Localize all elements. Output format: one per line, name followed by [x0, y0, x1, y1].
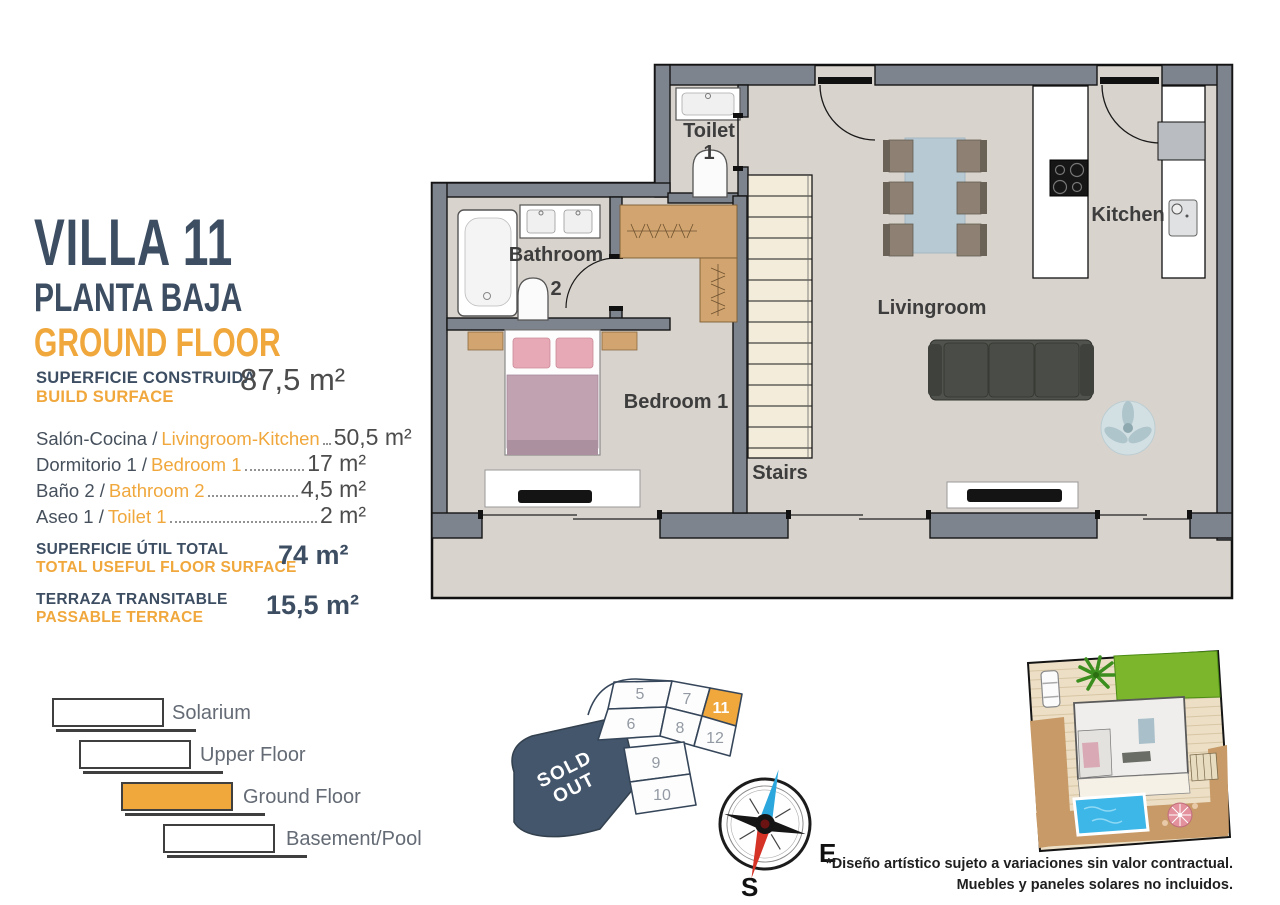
legend-line: [167, 855, 307, 858]
room-value: 2 m²: [320, 502, 366, 529]
unit-number-12: 12: [706, 730, 724, 747]
unit-number-5: 5: [636, 686, 645, 703]
compass-south-label: S: [741, 872, 758, 902]
build-surface-label-en: BUILD SURFACE: [36, 388, 256, 407]
duvet: [507, 375, 598, 448]
room-label-en: Bathroom 2: [109, 480, 205, 502]
room-label-es: Dormitorio 1 /: [36, 454, 147, 476]
disclaimer: *Diseño artístico sujeto a variaciones s…: [826, 854, 1233, 896]
tv: [518, 490, 592, 503]
legend-box-ground-floor: [121, 782, 233, 811]
room-value: 4,5 m²: [301, 476, 366, 503]
nightstand: [468, 332, 503, 350]
disclaimer-line2: Muebles y paneles solares no incluidos.: [826, 875, 1233, 896]
pillow: [513, 338, 550, 368]
nightstand: [602, 332, 637, 350]
terrace-label-es: TERRAZA TRANSITABLE: [36, 591, 228, 609]
lawn: [1114, 651, 1220, 700]
legend-line: [83, 771, 223, 774]
bed-foot: [507, 440, 598, 455]
build-surface-value: 87,5 m²: [240, 362, 345, 398]
room-label-en: Toilet 1: [108, 506, 167, 528]
terrace-label-en: PASSABLE TERRACE: [36, 609, 228, 627]
room-value: 50,5 m²: [334, 424, 412, 451]
passable-terrace-value: 15,5 m²: [266, 590, 359, 621]
subtitle-es: PLANTA BAJA: [34, 276, 242, 321]
kitchen-counter: [1162, 86, 1205, 278]
legend-label-ground-floor: Ground Floor: [243, 786, 361, 809]
legend-box-upper-floor: [79, 740, 191, 769]
build-surface-label-es: SUPERFICIE CONSTRUIDA: [36, 369, 256, 388]
room-value: 17 m²: [307, 450, 366, 477]
room-label-es: Baño 2 /: [36, 480, 105, 502]
label-livingroom: Livingroom: [878, 297, 987, 319]
unit-number-8: 8: [676, 720, 685, 737]
site-plan-thumbnail: [1022, 645, 1236, 857]
dotted-leader: [245, 469, 305, 471]
disclaimer-line1: *Diseño artístico sujeto a variaciones s…: [826, 854, 1233, 875]
build-surface-labels: SUPERFICIE CONSTRUIDA BUILD SURFACE: [36, 369, 256, 407]
bathroom-toilet: [518, 278, 548, 320]
room-row: Baño 2 / Bathroom 2 4,5 m²: [36, 476, 366, 502]
fridge: [1158, 122, 1205, 160]
label-bathroom: Bathroom: [509, 244, 603, 266]
room-label-en: Bedroom 1: [151, 454, 242, 476]
total-label-en: TOTAL USEFUL FLOOR SURFACE: [36, 559, 297, 577]
room-label-es: Salón-Cocina /: [36, 428, 157, 450]
dotted-leader: [208, 495, 298, 497]
legend-label-basement-pool: Basement/Pool: [286, 828, 422, 851]
room-row: Aseo 1 / Toilet 1 2 m²: [36, 502, 366, 528]
dotted-leader: [323, 443, 331, 445]
legend-box-basement-pool: [163, 824, 275, 853]
floorplan: Toilet 1 Bathroom 2 Bedroom 1 Stairs Liv…: [425, 58, 1237, 604]
page-title: VILLA 11: [34, 204, 233, 280]
dining-table: [905, 138, 965, 253]
dining-set: [883, 138, 987, 256]
label-kitchen: Kitchen: [1091, 204, 1164, 226]
legend-box-solarium: [52, 698, 164, 727]
room-row: Salón-Cocina / Livingroom-Kitchen 50,5 m…: [36, 424, 366, 450]
unit-number-9: 9: [652, 755, 661, 772]
legend-label-upper-floor: Upper Floor: [200, 744, 306, 767]
passable-terrace: TERRAZA TRANSITABLE PASSABLE TERRACE: [36, 591, 228, 627]
total-useful-surface-value: 74 m²: [278, 540, 349, 571]
unit-number-11: 11: [713, 700, 730, 717]
subtitle-en: GROUND FLOOR: [34, 321, 281, 366]
ceiling-fan: [1101, 401, 1155, 455]
tv: [967, 489, 1062, 502]
stairs: [748, 175, 812, 458]
legend-line: [56, 729, 196, 732]
total-label-es: SUPERFICIE ÚTIL TOTAL: [36, 541, 297, 559]
label-stairs: Stairs: [752, 462, 808, 484]
legend-label-solarium: Solarium: [172, 702, 251, 725]
label-toilet-number: 1: [703, 142, 714, 164]
unit-number-6: 6: [627, 716, 636, 733]
room-label-en: Livingroom-Kitchen: [161, 428, 319, 450]
total-useful-surface: SUPERFICIE ÚTIL TOTAL TOTAL USEFUL FLOOR…: [36, 541, 297, 577]
label-bathroom-number: 2: [550, 278, 561, 300]
pool: [1074, 794, 1148, 835]
unit-number-10: 10: [653, 787, 671, 804]
label-bedroom: Bedroom 1: [624, 391, 728, 413]
unit-number-7: 7: [683, 691, 692, 708]
legend-line: [125, 813, 265, 816]
room-label-es: Aseo 1 /: [36, 506, 104, 528]
car: [1041, 670, 1060, 707]
room-list: Salón-Cocina / Livingroom-Kitchen 50,5 m…: [36, 424, 366, 528]
label-toilet: Toilet: [683, 120, 735, 142]
dotted-leader: [170, 521, 317, 523]
pillow: [556, 338, 593, 368]
room-row: Dormitorio 1 / Bedroom 1 17 m²: [36, 450, 366, 476]
